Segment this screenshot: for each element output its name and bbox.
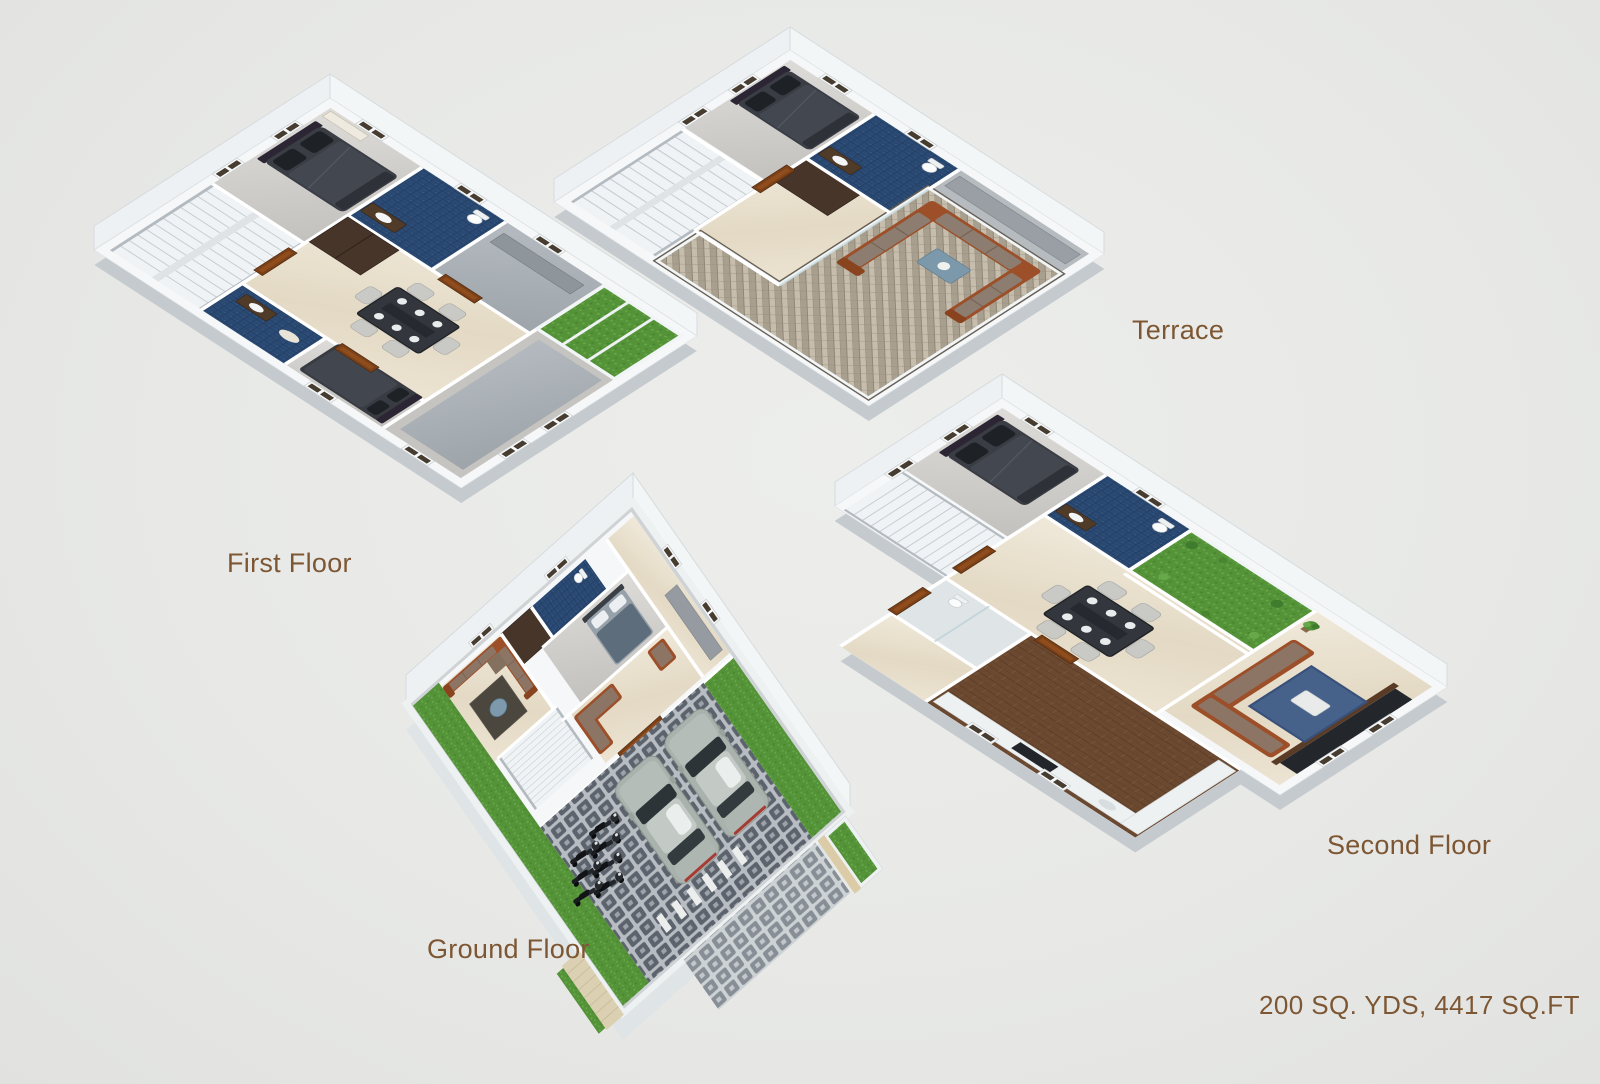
- floor-plans-canvas: First Floor Terrace Ground Floor Second …: [0, 0, 1600, 1084]
- label-ground-floor: Ground Floor: [427, 934, 590, 965]
- floor-plan-scene: [0, 0, 1600, 1084]
- area-label: 200 SQ. YDS, 4417 SQ.FT: [1259, 990, 1580, 1021]
- label-second-floor: Second Floor: [1327, 830, 1491, 861]
- label-first-floor: First Floor: [227, 548, 352, 579]
- first-floor-plan: [94, 74, 697, 503]
- label-terrace: Terrace: [1132, 315, 1224, 346]
- ground-floor-plan: [380, 473, 890, 1084]
